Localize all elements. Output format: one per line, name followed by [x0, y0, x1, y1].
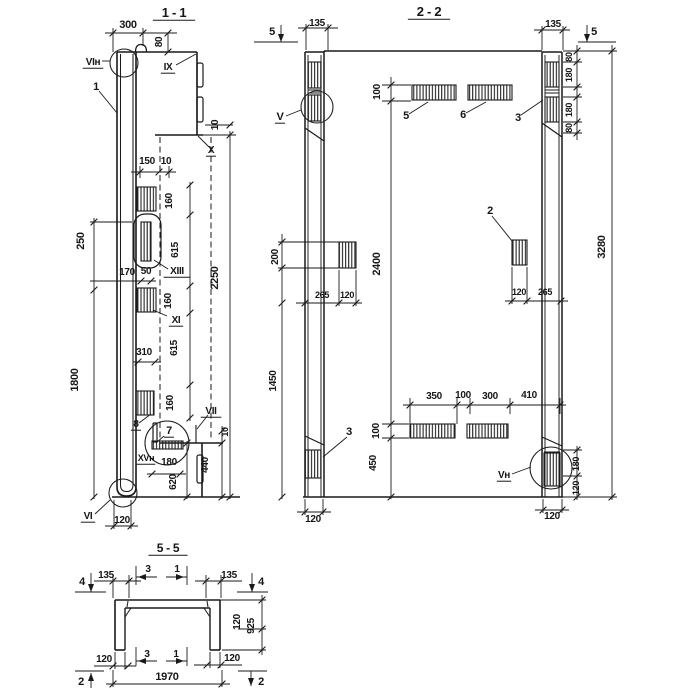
label-s11-title: 1 - 1	[162, 5, 187, 20]
label-s55-m3t: 3	[145, 564, 151, 575]
label-s22-d135l: 135	[309, 18, 326, 29]
label-s11-rIX: IX	[164, 62, 173, 73]
label-s22-p3b: 3	[346, 426, 352, 438]
label-s22-d450: 450	[368, 454, 379, 471]
leader-line	[492, 216, 512, 241]
section-cut-arrow	[88, 584, 94, 592]
leader-line	[176, 54, 196, 65]
label-s11-rVIn: VIн	[86, 57, 101, 68]
label-s22-d350: 350	[426, 391, 443, 402]
label-s11-d620: 620	[168, 473, 179, 490]
label-s11-d80: 80	[154, 36, 165, 47]
label-s11-rXIII: XIII	[170, 266, 184, 277]
section-5-5-view: 5 - 5413531135412092512031120197022	[75, 541, 268, 688]
label-s55-d1970: 1970	[155, 671, 178, 683]
label-s55-m4r: 4	[258, 576, 265, 588]
leader-line	[154, 260, 168, 269]
section-cut-arrow	[249, 584, 255, 592]
label-s11-d10c: 10	[220, 427, 230, 437]
label-s11-d1800: 1800	[69, 368, 81, 391]
label-s22-d3280: 3280	[596, 235, 608, 258]
label-s11-d2250: 2250	[209, 266, 221, 289]
label-s22-d120bl: 120	[305, 514, 322, 525]
label-s55-m1t: 1	[174, 564, 180, 575]
label-s55-m3b: 3	[144, 649, 150, 660]
label-s11-d180: 180	[161, 457, 178, 468]
label-s22-d100t: 100	[372, 83, 383, 100]
label-s22-d200: 200	[270, 248, 281, 265]
label-s55-d135r: 135	[221, 570, 238, 581]
outline-edge	[204, 608, 210, 617]
label-s11-d160a: 160	[164, 192, 175, 209]
label-s22-d120l: 120	[340, 290, 354, 300]
embedded-plate-hatch	[544, 453, 560, 486]
label-s22-d2400: 2400	[371, 252, 383, 275]
embedded-plate-hatch	[137, 187, 156, 211]
label-s22-d265l: 265	[315, 290, 329, 300]
embedded-plate-hatch	[467, 424, 508, 438]
label-s22-c180c: 180	[571, 457, 581, 471]
outline-path	[136, 45, 147, 53]
embedded-plate-hatch	[305, 450, 321, 478]
embedded-plate-hatch	[308, 62, 321, 88]
label-s11-d440: 440	[200, 456, 211, 473]
outline-edge	[127, 601, 128, 607]
label-s22-d1450: 1450	[268, 370, 279, 392]
label-s55-d120r: 120	[232, 613, 243, 630]
drawing-canvas: 1 - 130080VIн1IX10X150101606151606151602…	[0, 0, 700, 700]
label-s11-d615b: 615	[169, 339, 180, 356]
embed-bracket	[197, 63, 203, 87]
label-s11-d310: 310	[136, 347, 153, 358]
label-s22-c80b: 80	[564, 123, 574, 133]
label-s11-d10a: 10	[210, 119, 221, 130]
label-s55-m2l: 2	[78, 676, 84, 688]
label-s55-m2r: 2	[258, 676, 264, 688]
embedded-plate-hatch	[308, 95, 321, 121]
embed-bracket	[197, 97, 203, 122]
label-s11-rX: X	[208, 145, 215, 156]
label-s11-rXVn: XVн	[138, 453, 155, 463]
leader-line	[409, 102, 428, 114]
detail-circle	[109, 479, 137, 507]
label-s22-rVn: Vн	[498, 470, 510, 481]
label-s11-p7: 7	[166, 425, 172, 437]
label-s22-p6: 6	[460, 109, 466, 121]
label-s22-d100b: 100	[371, 422, 382, 439]
label-s22-p5: 5	[403, 110, 409, 122]
drawing-sheet: 1 - 130080VIн1IX10X150101606151606151602…	[0, 0, 700, 700]
leader-line	[99, 91, 117, 113]
embedded-plate-hatch	[137, 288, 156, 312]
label-s11-rVI: VI	[84, 511, 93, 522]
label-s11-rXI: XI	[172, 315, 181, 326]
label-s11-p1: 1	[93, 81, 99, 93]
label-s55-title: 5 - 5	[157, 541, 180, 555]
label-s11-d10b: 10	[161, 156, 172, 167]
label-s11-p8: 8	[133, 419, 139, 430]
label-s11-d150: 150	[139, 156, 156, 167]
leader-line	[512, 467, 531, 474]
embedded-plate-hatch	[512, 240, 527, 265]
label-s22-c180b: 180	[564, 103, 574, 117]
section-cut-arrow	[248, 678, 254, 686]
embedded-plate-hatch	[410, 424, 455, 438]
label-s55-d120bl: 120	[96, 654, 113, 665]
outline-edge	[125, 608, 131, 617]
section-1-1-view: 1 - 130080VIн1IX10X150101606151606151602…	[69, 5, 240, 529]
section-cut-arrow	[584, 34, 590, 42]
embedded-plate-hatch	[468, 85, 512, 100]
section-cut-arrow	[88, 673, 94, 681]
label-s55-m4l: 4	[79, 576, 86, 588]
label-s22-d300: 300	[482, 391, 499, 402]
label-s22-p2: 2	[487, 205, 493, 217]
label-s55-m1b: 1	[173, 649, 179, 660]
leader-line	[286, 110, 301, 116]
label-s55-d925: 925	[246, 617, 257, 634]
label-s22-d265r: 265	[538, 287, 552, 297]
label-s22-c80a: 80	[564, 52, 574, 62]
label-s22-d120br: 120	[544, 511, 561, 522]
label-s11-d160c: 160	[165, 394, 176, 411]
label-s22-d100m: 100	[455, 390, 472, 401]
label-s11-d300: 300	[119, 19, 137, 31]
embedded-plate-hatch	[152, 441, 183, 449]
leader-line	[521, 100, 543, 115]
embedded-plate-hatch	[545, 97, 559, 122]
embedded-plate-hatch	[545, 62, 559, 87]
label-s22-m5l: 5	[269, 26, 275, 38]
label-s22-rV: V	[276, 111, 284, 123]
detail-circle	[110, 49, 138, 77]
section-cut-arrow	[278, 34, 284, 42]
label-s22-d135r: 135	[545, 19, 562, 30]
label-s55-d120br: 120	[224, 653, 241, 664]
leader-line	[323, 437, 347, 457]
label-s22-d410: 410	[521, 390, 538, 401]
embedded-plate-hatch	[339, 242, 356, 268]
embedded-plate-hatch	[141, 222, 151, 261]
label-s11-d615a: 615	[170, 241, 181, 258]
label-s11-d250: 250	[75, 232, 87, 250]
label-s22-c180a: 180	[564, 68, 574, 82]
section-2-2-view: 2 - 2551351358018018080100563V2002400232…	[254, 4, 617, 525]
leader-line	[95, 500, 110, 514]
label-s22-m5r: 5	[591, 26, 597, 38]
label-s11-rVII: VII	[205, 406, 217, 417]
label-s22-p3t: 3	[515, 112, 521, 124]
label-s11-d120: 120	[114, 515, 131, 526]
label-s22-c120c: 120	[571, 481, 581, 495]
label-s11-d50: 50	[141, 266, 152, 277]
label-s11-d170: 170	[119, 267, 136, 278]
leader-line	[466, 102, 486, 113]
label-s22-d120r: 120	[512, 287, 526, 297]
label-s11-d160b: 160	[163, 292, 174, 309]
embedded-plate-hatch	[136, 391, 154, 415]
embedded-plate-hatch	[412, 85, 456, 100]
label-s55-d135l: 135	[98, 570, 115, 581]
outline-edge	[207, 601, 208, 607]
label-s22-title: 2 - 2	[417, 4, 442, 19]
